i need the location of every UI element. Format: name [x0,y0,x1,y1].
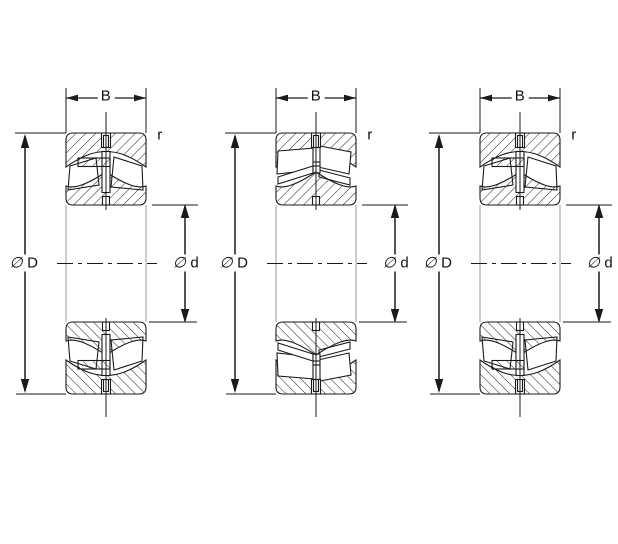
diameter-letter: d [604,255,613,272]
outer-diameter-label: ∅D [421,255,456,272]
diameter-letter: D [441,255,452,272]
left-bearing-diagram [15,88,198,417]
middle-bearing-diagram [225,88,408,417]
dimension-lines [225,88,408,417]
bore-diameter-label: ∅d [380,255,412,272]
diameter-letter: D [27,255,38,272]
width-dimension-label: B [308,88,325,105]
diameter-symbol: ∅ [587,255,601,272]
diameter-letter: D [237,255,248,272]
diameter-letter: d [190,255,199,272]
dimension-lines [429,88,612,417]
corner-radius-label: r [571,128,577,143]
corner-radius-label: r [157,128,163,143]
bore-diameter-label: ∅d [584,255,616,272]
width-dimension-label: B [512,88,529,105]
diameter-symbol: ∅ [383,255,397,272]
bearing-line-art [0,0,618,544]
diameter-symbol: ∅ [10,255,24,272]
bearing-dimension-figure: B r ∅D ∅d B r ∅D ∅d B r ∅D ∅d [0,0,618,544]
diameter-symbol: ∅ [424,255,438,272]
width-dimension-label: B [98,88,115,105]
outer-diameter-label: ∅D [7,255,42,272]
diameter-symbol: ∅ [220,255,234,272]
diameter-symbol: ∅ [173,255,187,272]
corner-radius-label: r [367,128,373,143]
dimension-lines [15,88,198,417]
diameter-letter: d [400,255,409,272]
bore-diameter-label: ∅d [170,255,202,272]
outer-diameter-label: ∅D [217,255,252,272]
right-bearing-diagram [429,88,612,417]
